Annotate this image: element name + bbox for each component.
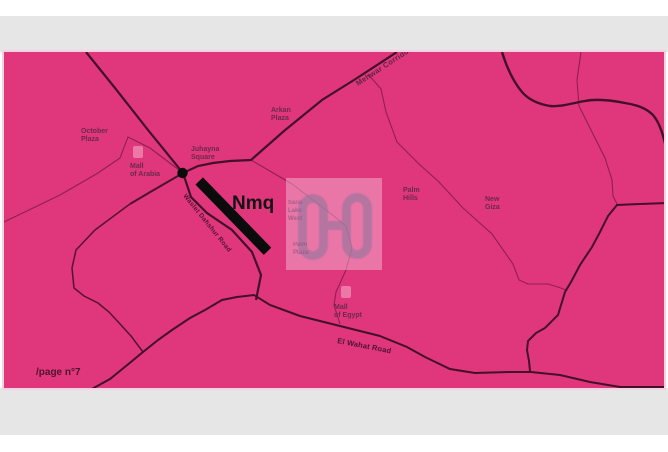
svg-text:October: October [81, 128, 108, 135]
svg-text:Giza: Giza [485, 204, 500, 211]
svg-text:Arkan: Arkan [271, 107, 291, 114]
svg-text:Palm: Palm [403, 187, 420, 194]
svg-text:Plaza: Plaza [293, 250, 309, 256]
svg-text:West: West [288, 216, 302, 222]
svg-text:/page n°7: /page n°7 [36, 367, 81, 378]
svg-text:Plaza: Plaza [81, 136, 99, 143]
svg-text:Nmq: Nmq [232, 193, 274, 214]
svg-text:Juhayna: Juhayna [191, 146, 220, 153]
svg-text:New: New [485, 196, 500, 203]
svg-text:Lake: Lake [288, 208, 302, 214]
svg-text:Sarai: Sarai [288, 200, 303, 206]
svg-text:Palm: Palm [293, 242, 307, 248]
svg-text:Hills: Hills [403, 195, 418, 202]
svg-text:Plaza: Plaza [271, 115, 289, 122]
svg-text:of Egypt: of Egypt [334, 312, 363, 319]
svg-text:Mall: Mall [130, 163, 144, 170]
svg-text:Mall: Mall [334, 304, 348, 311]
svg-text:Square: Square [191, 154, 215, 161]
svg-text:of Arabia: of Arabia [130, 171, 160, 178]
